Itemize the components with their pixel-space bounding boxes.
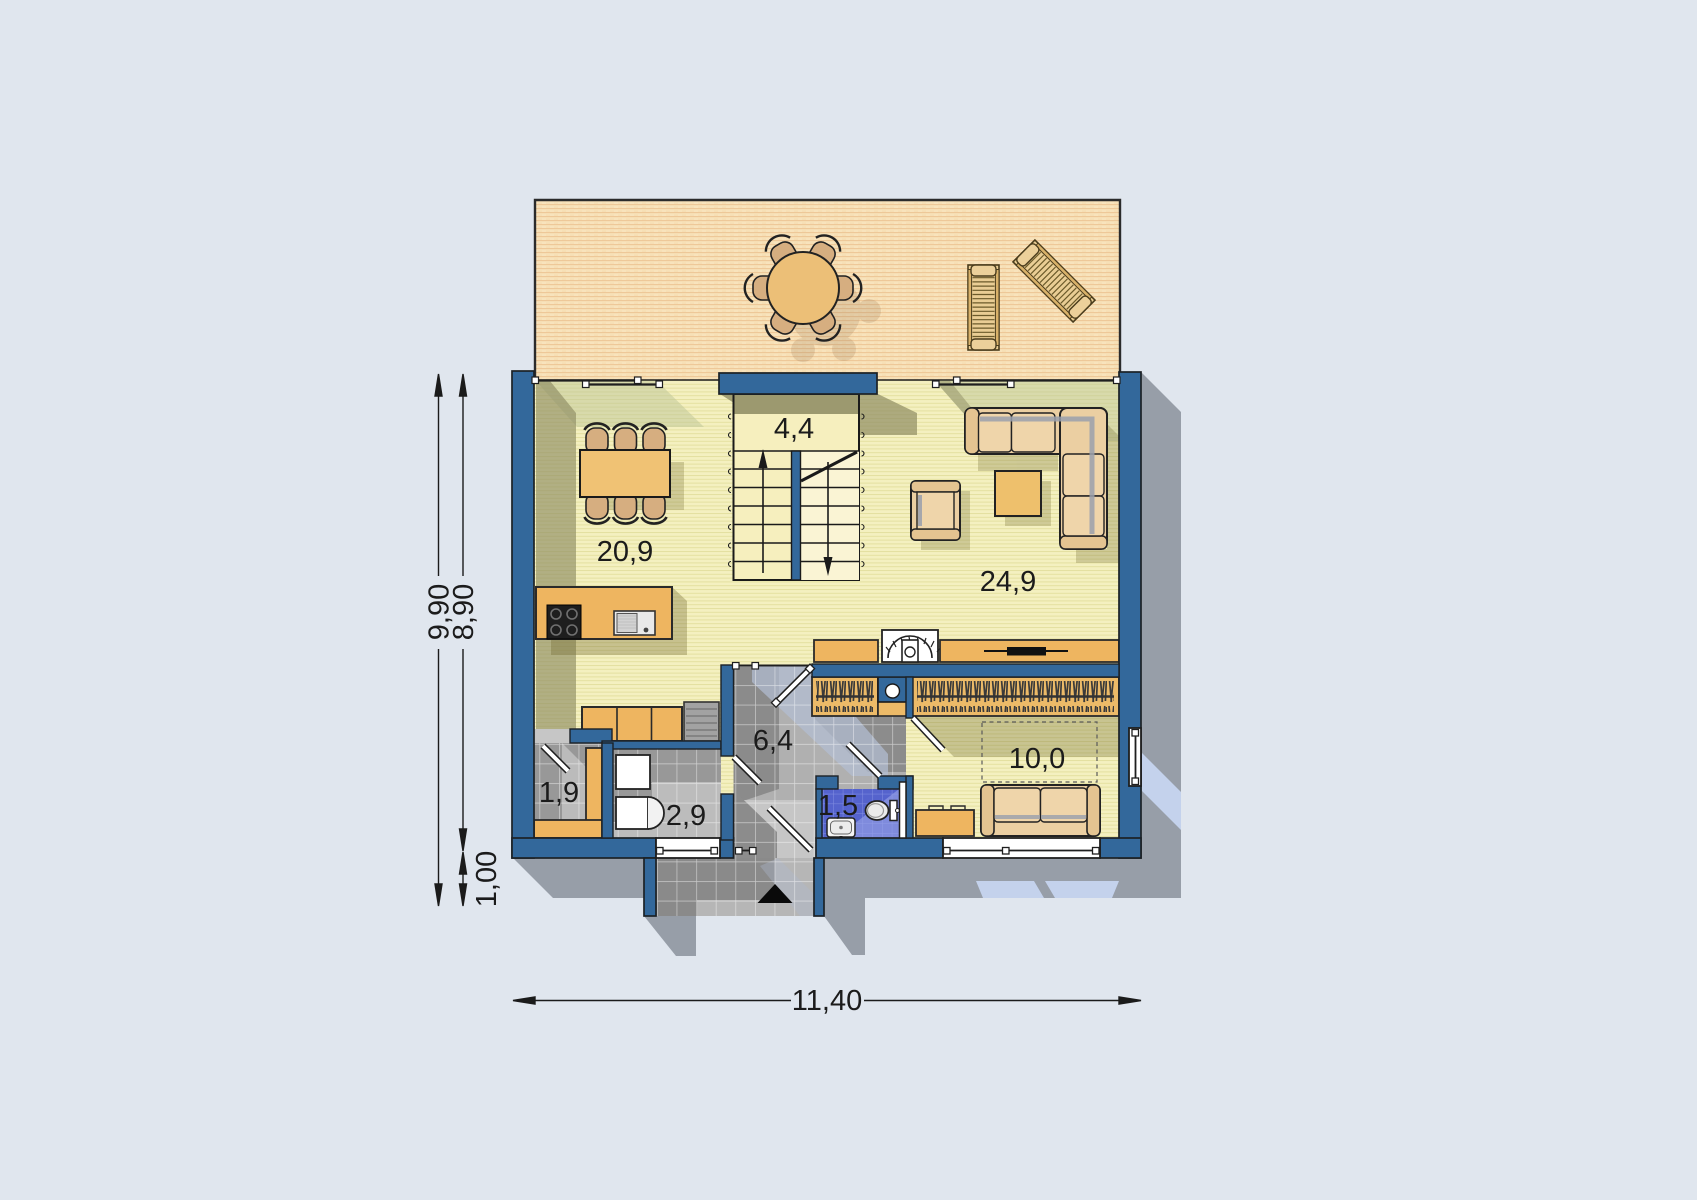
svg-text:8,90: 8,90: [448, 584, 480, 640]
svg-text:4,4: 4,4: [774, 413, 814, 445]
svg-text:1,5: 1,5: [818, 790, 858, 822]
svg-text:1,9: 1,9: [539, 777, 579, 809]
svg-text:24,9: 24,9: [980, 566, 1036, 598]
svg-text:10,0: 10,0: [1009, 743, 1065, 775]
svg-text:20,9: 20,9: [597, 536, 653, 568]
svg-text:11,40: 11,40: [792, 985, 862, 1017]
svg-text:2,9: 2,9: [666, 800, 706, 832]
svg-text:1,00: 1,00: [471, 851, 503, 907]
svg-text:6,4: 6,4: [753, 725, 793, 757]
